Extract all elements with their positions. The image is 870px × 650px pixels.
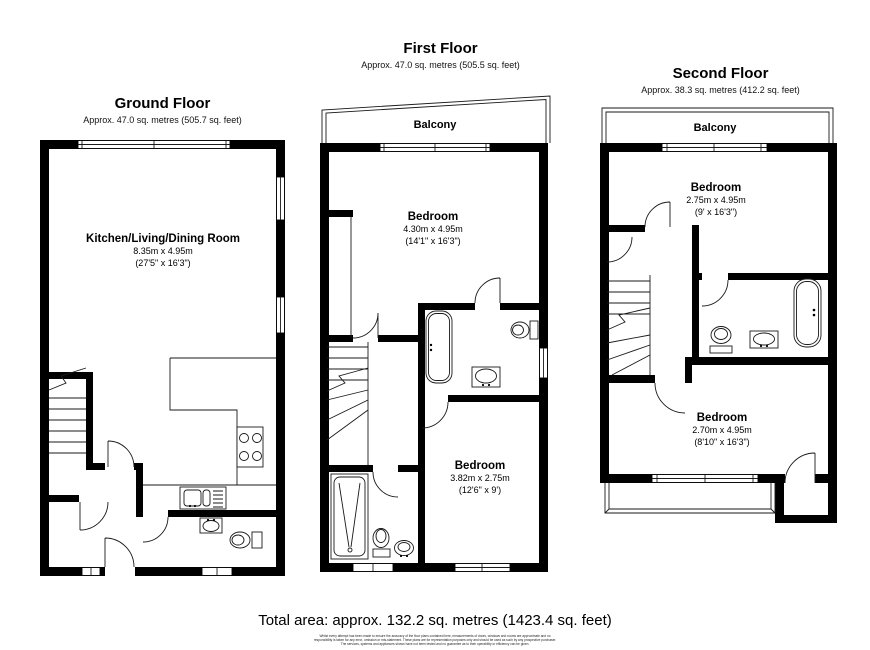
basin-icon-2 <box>395 541 414 558</box>
first-floor-subtitle: Approx. 47.0 sq. metres (505.5 sq. feet) <box>308 60 573 70</box>
stairs-icon <box>49 368 86 453</box>
basin-icon <box>750 331 778 348</box>
first-floor-title: First Floor <box>308 40 573 57</box>
first-floor-plan <box>318 95 563 577</box>
ground-floor-plan <box>40 140 285 576</box>
stairs-icon <box>607 275 650 375</box>
hob-icon <box>237 427 263 467</box>
toilet-icon <box>230 532 262 548</box>
balcony-label: Balcony <box>385 119 485 131</box>
toilet-icon-2 <box>373 529 390 558</box>
sink-icon <box>180 487 226 509</box>
toilet-icon <box>511 321 538 339</box>
disclaimer-text: Whilst every attempt has been made to en… <box>313 634 557 646</box>
room-label-kitchen-living-dining: Kitchen/Living/Dining Room 8.35m x 4.95m… <box>83 232 243 269</box>
second-floor-plan <box>598 105 843 525</box>
second-floor-subtitle: Approx. 38.3 sq. metres (412.2 sq. feet) <box>588 85 853 95</box>
room-label-bedroom-2: Bedroom 3.82m x 2.75m (12'6" x 9') <box>400 459 560 496</box>
entry-door <box>785 453 815 483</box>
balcony-label: Balcony <box>665 122 765 134</box>
bathtub-icon <box>794 279 821 347</box>
stairs-icon <box>327 342 368 465</box>
ground-floor-subtitle: Approx. 47.0 sq. metres (505.7 sq. feet) <box>30 115 295 125</box>
second-floor-title: Second Floor <box>588 65 853 82</box>
room-label-bedroom-2: Bedroom 2.70m x 4.95m (8'10" x 16'3") <box>642 411 802 448</box>
toilet-icon <box>710 327 732 354</box>
room-label-bedroom-1: Bedroom 4.30m x 4.95m (14'1" x 16'3") <box>353 210 513 247</box>
second-floor-section: Second Floor Approx. 38.3 sq. metres (41… <box>588 60 853 540</box>
basin-icon <box>472 367 500 387</box>
shower-icon <box>331 474 368 559</box>
basin-icon <box>200 518 222 533</box>
juliet-balcony-outline <box>605 483 775 513</box>
room-label-bedroom-1: Bedroom 2.75m x 4.95m (9' x 16'3") <box>636 181 796 218</box>
ground-floor-section: Ground Floor Approx. 47.0 sq. metres (50… <box>30 90 295 590</box>
floorplan-page: Ground Floor Approx. 47.0 sq. metres (50… <box>0 0 870 650</box>
door-arc-icon <box>80 441 168 542</box>
bathtub-icon <box>426 311 452 383</box>
total-area-text: Total area: approx. 132.2 sq. metres (14… <box>0 612 870 629</box>
ground-floor-title: Ground Floor <box>30 95 295 112</box>
first-floor-section: First Floor Approx. 47.0 sq. metres (505… <box>308 35 573 595</box>
front-door <box>105 538 135 576</box>
